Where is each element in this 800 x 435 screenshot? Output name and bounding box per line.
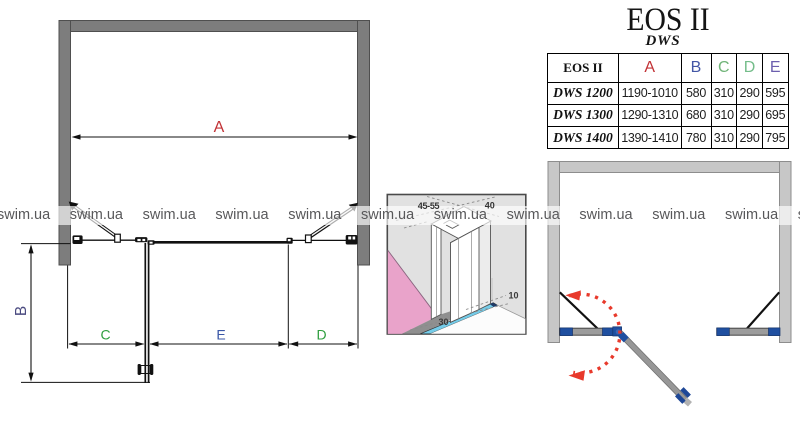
svg-text:45-55: 45-55 — [418, 201, 440, 211]
svg-text:40: 40 — [485, 200, 495, 210]
